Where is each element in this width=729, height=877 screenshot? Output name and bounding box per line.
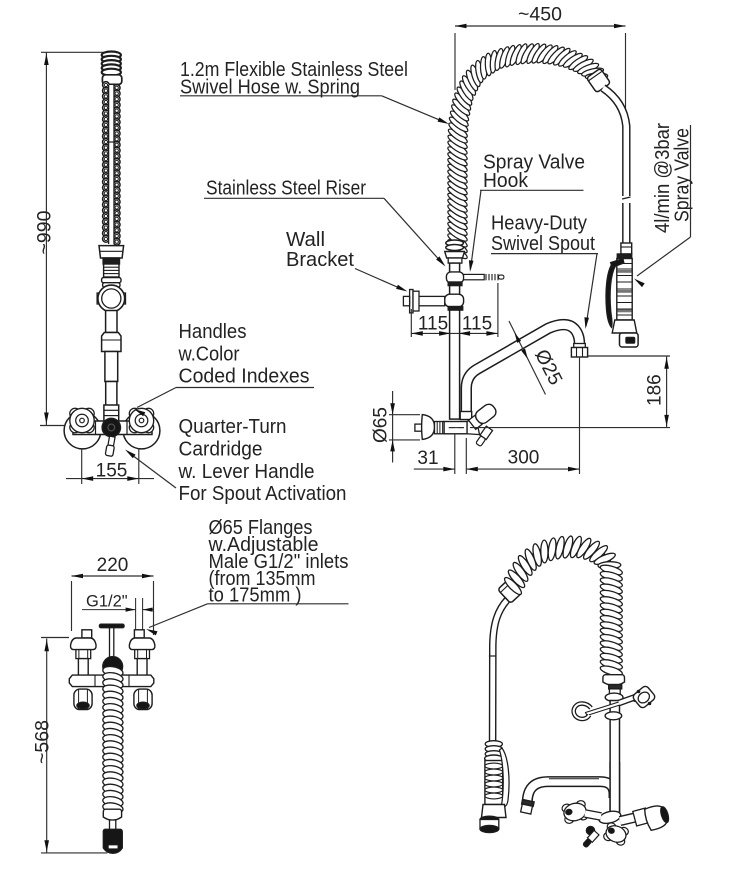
svg-text:G1/2": G1/2" [86,593,128,611]
svg-text:Handles: Handles [179,321,247,343]
svg-text:Coded Indexes: Coded Indexes [179,366,310,388]
svg-text:Hook: Hook [483,170,529,192]
svg-text:~568: ~568 [32,720,54,764]
svg-text:155: 155 [96,461,128,482]
svg-text:Swivel Spout: Swivel Spout [491,233,595,255]
svg-text:~990: ~990 [34,210,56,254]
svg-text:w. Lever Handle: w. Lever Handle [178,461,315,483]
svg-text:186: 186 [645,374,666,406]
svg-text:w.Color: w.Color [178,344,240,366]
svg-text:Bracket: Bracket [286,249,354,271]
svg-text:115: 115 [418,314,448,335]
svg-text:Heavy-Duty: Heavy-Duty [491,213,587,235]
svg-text:Wall: Wall [286,229,325,251]
svg-text:Stainless Steel Riser: Stainless Steel Riser [206,178,366,200]
svg-text:For Spout Activation: For Spout Activation [179,483,347,505]
svg-text:Cardridge: Cardridge [179,439,263,461]
svg-text:~450: ~450 [518,4,562,26]
svg-text:Quarter-Turn: Quarter-Turn [179,416,287,438]
svg-text:115: 115 [462,314,492,335]
svg-text:300: 300 [508,448,540,469]
svg-text:Swivel Hose w. Spring: Swivel Hose w. Spring [180,77,360,99]
svg-text:31: 31 [417,448,438,469]
svg-text:Ø65: Ø65 [371,407,392,443]
svg-text:220: 220 [97,555,129,576]
